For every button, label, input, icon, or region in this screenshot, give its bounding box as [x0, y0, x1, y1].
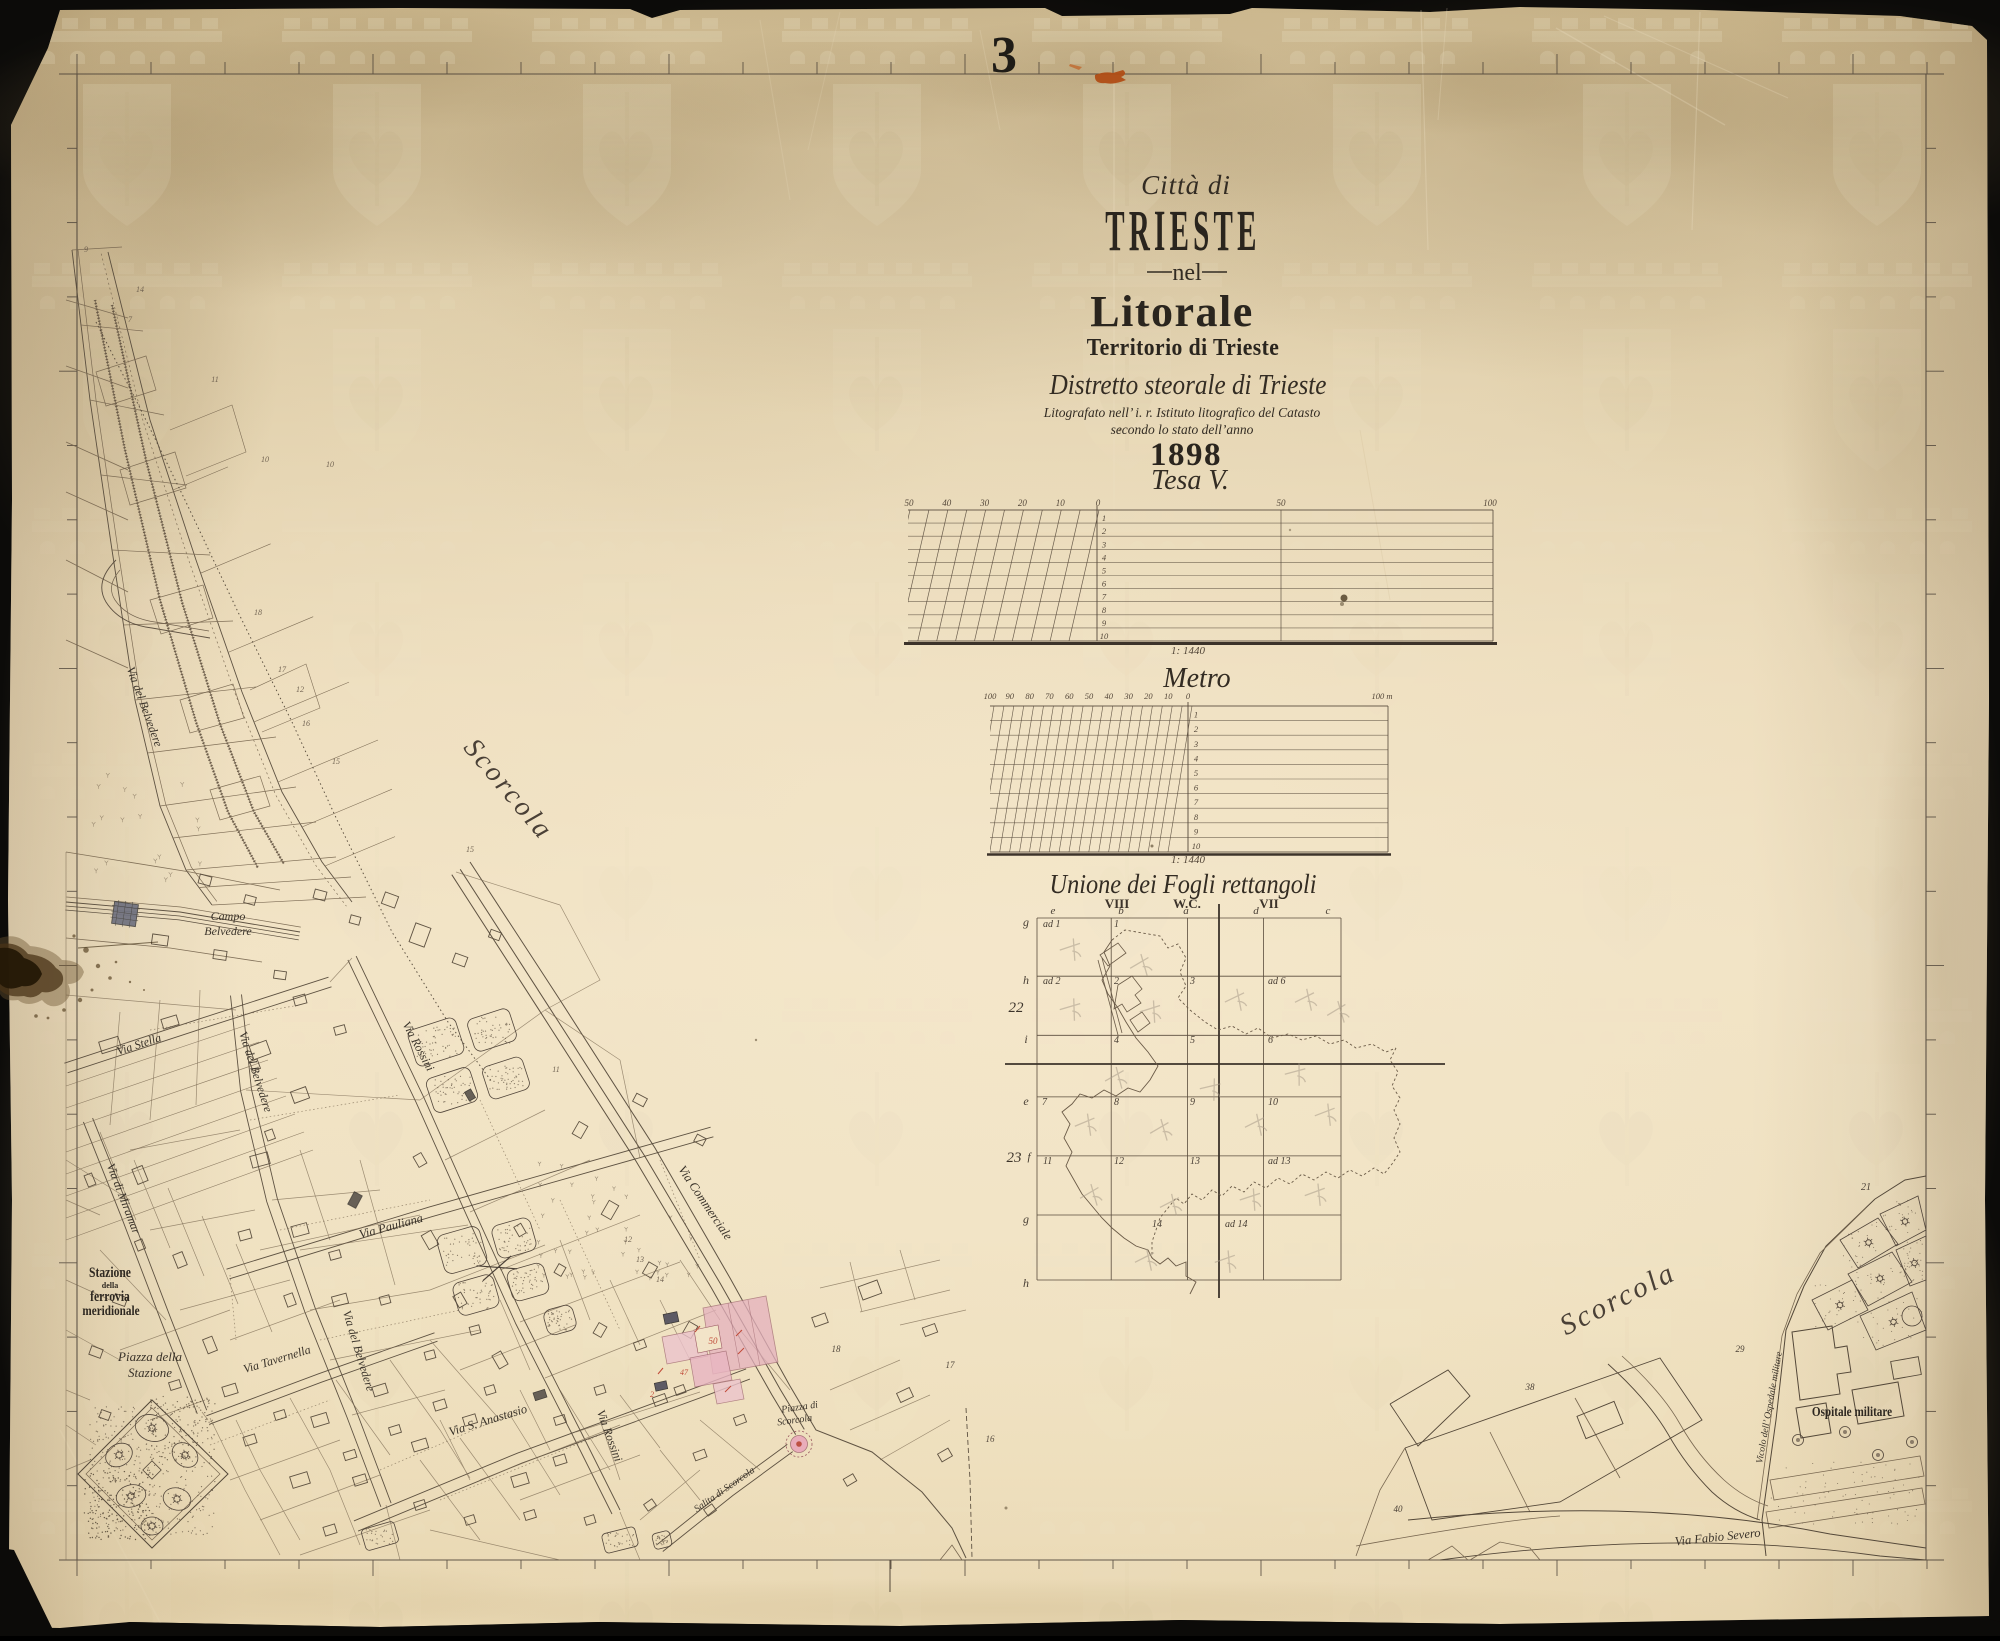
svg-text:0: 0: [1096, 498, 1101, 508]
svg-text:Litorale: Litorale: [1090, 287, 1254, 336]
svg-text:21: 21: [1861, 1182, 1871, 1193]
svg-text:5: 5: [1194, 768, 1198, 778]
svg-text:20: 20: [1018, 498, 1028, 508]
svg-text:12: 12: [296, 685, 304, 694]
svg-text:1: 1: [1102, 513, 1106, 523]
svg-text:29: 29: [1736, 1344, 1746, 1354]
svg-text:30: 30: [979, 498, 990, 508]
svg-text:17: 17: [278, 665, 287, 674]
svg-text:40: 40: [1394, 1504, 1404, 1514]
svg-text:50: 50: [1085, 691, 1094, 701]
svg-text:13: 13: [636, 1255, 644, 1264]
svg-text:1: 1: [1194, 710, 1198, 720]
svg-text:100: 100: [984, 691, 998, 701]
svg-text:d: d: [1253, 905, 1259, 917]
svg-text:18: 18: [254, 608, 262, 617]
svg-text:a: a: [1183, 905, 1189, 917]
svg-text:Città di: Città di: [1141, 170, 1231, 200]
svg-text:5: 5: [1190, 1035, 1195, 1046]
svg-text:80: 80: [1025, 691, 1034, 701]
svg-text:2: 2: [650, 1390, 654, 1399]
svg-text:3: 3: [1189, 976, 1195, 987]
svg-text:Tesa V.: Tesa V.: [1151, 465, 1229, 496]
svg-text:16: 16: [986, 1434, 996, 1444]
svg-text:100 m: 100 m: [1371, 691, 1392, 701]
svg-text:38: 38: [1525, 1382, 1536, 1392]
svg-text:3: 3: [991, 27, 1017, 84]
svg-text:h: h: [1023, 1276, 1029, 1290]
svg-text:nel: nel: [1172, 260, 1202, 286]
svg-text:16: 16: [302, 719, 310, 728]
svg-text:e: e: [1023, 1094, 1029, 1108]
svg-text:9: 9: [1190, 1097, 1195, 1108]
svg-text:10: 10: [326, 460, 334, 469]
svg-text:Stazione: Stazione: [128, 1365, 172, 1380]
svg-text:ad 13: ad 13: [1268, 1156, 1291, 1167]
svg-text:Piazza della: Piazza della: [117, 1349, 182, 1364]
svg-text:50: 50: [1277, 498, 1287, 508]
svg-text:15: 15: [466, 845, 474, 854]
svg-text:10: 10: [1268, 1097, 1278, 1108]
svg-text:8: 8: [1114, 1097, 1119, 1108]
svg-text:20: 20: [1144, 691, 1153, 701]
svg-text:1: 1440: 1: 1440: [1171, 645, 1205, 657]
svg-text:VII: VII: [1259, 896, 1279, 911]
svg-text:1: 1: [1114, 919, 1119, 930]
svg-text:10: 10: [1056, 498, 1066, 508]
svg-text:50: 50: [905, 498, 915, 508]
svg-text:17: 17: [946, 1360, 956, 1370]
svg-text:15: 15: [332, 757, 340, 766]
svg-text:Belvedere: Belvedere: [204, 924, 252, 938]
svg-text:ad 2: ad 2: [1043, 976, 1061, 987]
svg-text:ad 14: ad 14: [1225, 1219, 1248, 1230]
svg-text:Ospitale militare: Ospitale militare: [1812, 1404, 1893, 1419]
svg-text:90: 90: [1006, 691, 1015, 701]
svg-text:Metro: Metro: [1162, 663, 1230, 694]
svg-text:3: 3: [1193, 739, 1198, 749]
svg-text:g: g: [1023, 915, 1029, 929]
svg-text:TRIESTE: TRIESTE: [1105, 198, 1260, 263]
svg-text:23: 23: [1007, 1150, 1022, 1166]
svg-text:c: c: [1326, 905, 1331, 917]
svg-text:40: 40: [1105, 691, 1114, 701]
svg-text:Territorio di Trieste: Territorio di Trieste: [1087, 334, 1280, 360]
svg-text:14: 14: [136, 285, 144, 294]
svg-text:11: 11: [1043, 1156, 1052, 1167]
svg-text:e: e: [1051, 905, 1056, 917]
svg-text:60: 60: [1065, 691, 1074, 701]
svg-text:10: 10: [1100, 631, 1109, 641]
svg-text:5: 5: [1102, 566, 1106, 576]
svg-text:Stazione: Stazione: [89, 1264, 131, 1281]
svg-text:10: 10: [1164, 691, 1173, 701]
svg-text:13: 13: [1190, 1156, 1200, 1167]
svg-text:22: 22: [1009, 1000, 1025, 1016]
svg-text:ferrovia: ferrovia: [90, 1288, 130, 1305]
svg-text:secondo lo stato dell’anno: secondo lo stato dell’anno: [1111, 422, 1254, 437]
svg-text:h: h: [1023, 973, 1029, 987]
svg-text:Unione dei Fogli rettangoli: Unione dei Fogli rettangoli: [1050, 869, 1317, 899]
svg-text:Distretto steorale di Trieste: Distretto steorale di Trieste: [1049, 369, 1327, 401]
svg-text:1: 1440: 1: 1440: [1171, 854, 1205, 866]
svg-text:40: 40: [942, 498, 952, 508]
svg-text:Litografato nell’ i. r. Istitu: Litografato nell’ i. r. Istituto litogra…: [1043, 405, 1321, 420]
svg-text:100: 100: [1483, 498, 1497, 508]
svg-text:47: 47: [680, 1368, 689, 1377]
svg-text:VIII: VIII: [1105, 896, 1130, 911]
svg-text:ad 1: ad 1: [1043, 919, 1061, 930]
svg-text:i: i: [1024, 1032, 1027, 1046]
svg-text:50: 50: [709, 1336, 719, 1346]
svg-text:3: 3: [1101, 539, 1106, 549]
svg-text:11: 11: [211, 375, 218, 384]
svg-text:14: 14: [656, 1275, 664, 1284]
svg-text:9: 9: [84, 245, 88, 254]
svg-text:70: 70: [1045, 691, 1054, 701]
svg-text:12: 12: [1114, 1156, 1124, 1167]
svg-text:11: 11: [552, 1065, 559, 1074]
svg-text:meridionale: meridionale: [82, 1303, 139, 1318]
svg-text:10: 10: [1192, 841, 1201, 851]
svg-text:b: b: [1118, 905, 1124, 917]
svg-text:4: 4: [1114, 1035, 1119, 1046]
svg-text:g: g: [1023, 1212, 1029, 1226]
svg-text:ad 6: ad 6: [1268, 976, 1286, 987]
svg-text:30: 30: [1123, 691, 1133, 701]
svg-text:Campo: Campo: [211, 909, 246, 923]
svg-text:18: 18: [832, 1344, 842, 1354]
svg-text:6: 6: [1268, 1035, 1273, 1046]
svg-text:10: 10: [261, 455, 269, 464]
